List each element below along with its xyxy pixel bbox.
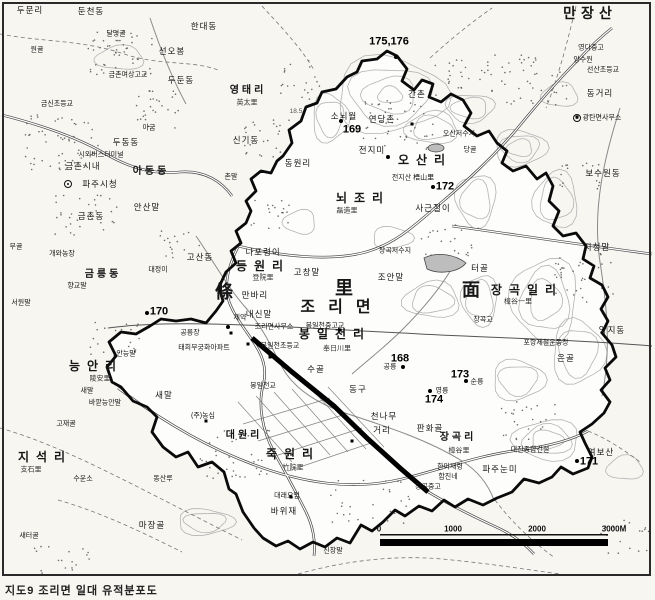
map-label: 개와농장 (49, 251, 75, 258)
map-label: 조리면 (300, 300, 383, 316)
map-label: 무골 (10, 244, 23, 251)
map-label: 장곡교 (473, 317, 492, 324)
building-icon (339, 329, 342, 332)
site-number: 170 (150, 307, 168, 318)
scale-bar-tick: 1000 (444, 525, 462, 534)
site-number: 174 (425, 395, 443, 406)
building-icon (351, 440, 354, 443)
map: 두문리둔천동달명골한대동원골선오봉금촌여상고교두둔동금신초등교아금두동동시외버스… (0, 0, 655, 600)
map-label: 수골 (307, 365, 325, 374)
building-icon (411, 123, 414, 126)
site-marker (145, 311, 149, 315)
map-label: 새말 (155, 391, 173, 400)
map-label: 은골 (557, 354, 575, 363)
map-label: 奉日川里 (323, 346, 351, 353)
map-label: 촌말 (225, 174, 238, 181)
map-label: 터골 (471, 264, 489, 273)
site-marker (386, 155, 390, 159)
map-label: 登院里 (253, 275, 274, 282)
map-label: 금촌시내 (65, 162, 100, 171)
government-office-icon (573, 114, 581, 122)
map-label: 안산말 (134, 203, 160, 212)
map-label: 竹院里 (283, 465, 304, 472)
map-label: 태희무궁화아파트 (178, 345, 230, 352)
government-office-icon (64, 180, 72, 188)
map-label: 장곡저수지 (379, 248, 411, 255)
map-label: 파주눈미 (482, 465, 517, 474)
map-label: 아동동 (133, 167, 170, 177)
map-label: 선오봉 (159, 47, 185, 56)
map-label: 양지동 (599, 326, 625, 335)
map-label: 오산리 (398, 154, 452, 166)
map-label: 대래요업 (274, 493, 300, 500)
map-label: 대정이 (148, 267, 167, 274)
map-label: 판화골 (417, 424, 443, 433)
map-label: 장곡리 (440, 433, 477, 443)
site-marker (428, 389, 432, 393)
map-label: 연당촌 (369, 115, 395, 124)
map-label: 아금 (143, 125, 156, 132)
site-marker (464, 379, 468, 383)
scale-bar-tick: 3000M (602, 525, 626, 534)
scale-bar-tick: 0 (377, 525, 381, 534)
map-label: 함진네 (438, 474, 457, 481)
map-label: 18.5 (290, 109, 303, 116)
map-label: 금신초등교 (41, 101, 73, 108)
map-label: 樟谷里 (449, 448, 470, 455)
site-number: 171 (580, 457, 598, 468)
building-icon (205, 420, 208, 423)
map-label: 거리 (373, 426, 391, 435)
map-label: 동산루 (153, 476, 172, 483)
map-label: 수운소 (73, 476, 92, 483)
map-label: 고재골 (56, 421, 75, 428)
map-label: 지청말 (584, 243, 610, 252)
map-label: 공릉 (384, 364, 397, 371)
map-label: 한대동 (191, 22, 217, 31)
site-marker (226, 325, 230, 329)
map-label: 봉일천리 (299, 328, 371, 340)
map-label: 양수원 (573, 57, 592, 64)
map-label: 순릉 (471, 379, 484, 386)
map-label: 陵安里 (90, 376, 111, 383)
map-label: 조안말 (378, 273, 404, 282)
map-label: 공릉장 (180, 330, 199, 337)
map-label: 능안리 (69, 360, 123, 372)
map-label: 서원말 (11, 300, 30, 307)
map-label: 봉일천초등교 (261, 343, 300, 350)
map-label: 광탄면사무소 (583, 115, 622, 122)
map-label: 달명골 (106, 31, 125, 38)
map-label: 영다중고 (578, 45, 604, 52)
map-label: 선산초등교 (587, 67, 619, 74)
map-label: 당골 (464, 147, 477, 154)
map-label: 향교말 (67, 283, 86, 290)
map-label: 두문리 (17, 6, 43, 15)
map-label: 금릉동 (85, 270, 122, 280)
building-icon (247, 343, 250, 346)
map-label: 장곡일리 (491, 284, 563, 296)
building-icon (290, 496, 293, 499)
map-label: 나포령이 (245, 248, 280, 257)
map-label: 두둔동 (168, 76, 194, 85)
map-label: 支石里 (21, 467, 42, 474)
map-label: 둔천동 (78, 7, 104, 16)
site-number: 175,176 (369, 37, 409, 48)
building-icon (230, 332, 233, 335)
map-label: 보수원동 (585, 169, 620, 178)
map-label: 신기동 (233, 136, 259, 145)
map-label: 안능말 (116, 351, 135, 358)
map-label: 장곡중고 (415, 484, 441, 491)
map-label: 내신말 (246, 310, 272, 319)
map-label: 천나무 (371, 412, 397, 421)
map-label: 만바리 (242, 291, 268, 300)
site-number: 172 (436, 182, 454, 193)
map-label: 마장골 (139, 521, 165, 530)
site-marker (394, 55, 398, 59)
map-label: 里 (335, 279, 353, 297)
map-label: 대진종합건설 (511, 447, 550, 454)
map-label: 英太里 (237, 100, 258, 107)
map-label: 두동동 (113, 138, 139, 147)
map-label: 소뇌월 (331, 112, 357, 121)
site-number: 168 (391, 354, 409, 365)
map-label: 磊造里 (337, 208, 358, 215)
map-label: (주)농심 (191, 413, 215, 420)
map-label: 금촌여상고교 (109, 72, 148, 79)
map-label: 바위재 (271, 507, 297, 516)
map-label: 금촌동 (78, 212, 104, 221)
map-label: 바깥능안말 (89, 400, 121, 407)
map-label: 파주시청 (82, 180, 117, 189)
map-label: 간촌 (408, 90, 426, 99)
map-label: 뇌조리 (336, 192, 390, 204)
map-label: 條 (215, 283, 233, 301)
map-label: 동구 (349, 385, 367, 394)
map-label: 고창말 (294, 268, 320, 277)
map-label: 오산저수지 (443, 131, 475, 138)
map-label: 동거리 (587, 89, 613, 98)
map-label: 포항제철운동장 (523, 340, 568, 347)
map-label: 봉일천교 (250, 383, 276, 390)
map-label: 面 (462, 281, 480, 299)
map-label: 새터골 (19, 533, 38, 540)
site-marker (575, 459, 579, 463)
site-marker (339, 119, 343, 123)
map-label: 영태리 (230, 86, 267, 96)
map-label: 원골 (31, 47, 44, 54)
map-label: 제약 (234, 315, 247, 322)
site-number: 169 (343, 125, 361, 136)
map-label: 대원리 (226, 431, 263, 441)
site-marker (431, 185, 435, 189)
map-label: 새말 (81, 388, 94, 395)
map-label: 전지미 (359, 146, 385, 155)
map-label: 지석리 (18, 451, 72, 463)
map-caption: 지도9 조리면 일대 유적분포도 (5, 582, 158, 598)
map-label: 사근절이 (415, 204, 450, 213)
scale-bar-tick: 2000 (528, 525, 546, 534)
site-marker (401, 365, 405, 369)
map-label: 조리면사무소 (255, 324, 294, 331)
map-label: 죽원리 (266, 448, 320, 460)
building-icon (269, 356, 272, 359)
map-label: 고산동 (187, 253, 213, 262)
map-label: 전지산 梧山里 (392, 175, 434, 182)
map-label: 동원리 (285, 159, 311, 168)
map-label: 신창말 (323, 548, 342, 555)
map-label: 樟谷一里 (504, 299, 532, 306)
map-label: 시외버스터미널 (78, 152, 123, 159)
map-label: 등원리 (236, 260, 290, 272)
map-label: 한미재령 (437, 464, 463, 471)
map-label: 만장산 (563, 6, 617, 20)
